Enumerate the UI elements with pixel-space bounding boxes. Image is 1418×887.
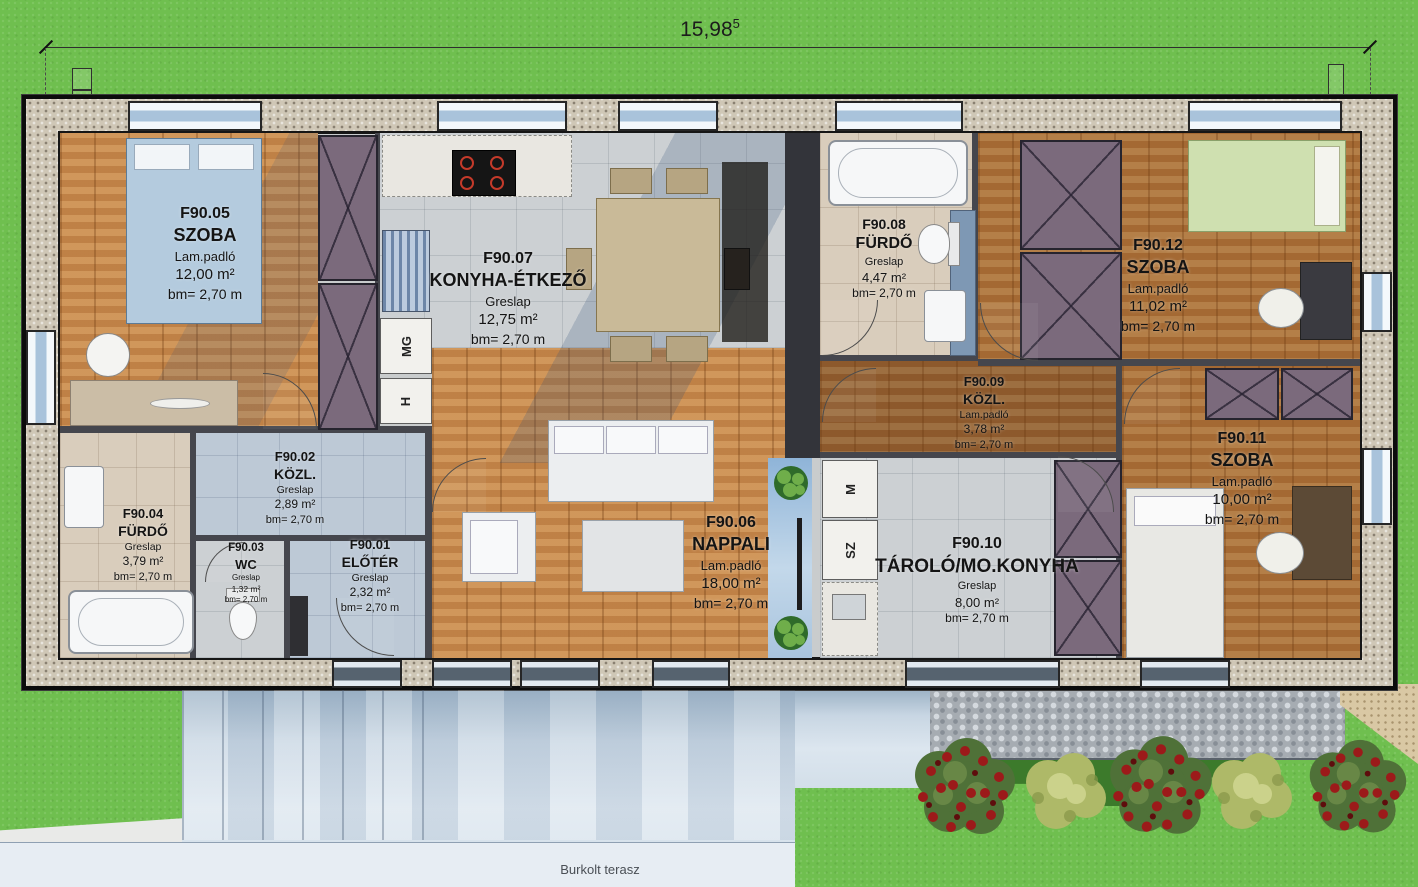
room-area: 3,78 m² <box>955 422 1013 438</box>
pillow <box>198 144 254 170</box>
chair <box>1256 532 1304 574</box>
room-area: 2,89 m² <box>266 497 324 513</box>
room-floor: Greslap <box>430 293 587 310</box>
room-area: 1,32 m² <box>225 584 267 595</box>
room-floor: Greslap <box>266 484 324 498</box>
washing-machine-label: M <box>843 484 858 495</box>
stool <box>86 333 130 377</box>
room-id: F90.06 <box>692 512 770 533</box>
room-id: F90.02 <box>266 448 324 465</box>
desk <box>1300 262 1352 340</box>
window <box>835 101 963 131</box>
room-floor: Lam.padló <box>955 409 1013 423</box>
room-label-f90-05: F90.05 SZOBA Lam.padló 12,00 m² bm= 2,70… <box>168 203 242 303</box>
window <box>905 660 1060 688</box>
wardrobe <box>1281 368 1353 420</box>
vent-marker <box>72 68 92 90</box>
dimension-line <box>45 47 1370 48</box>
dryer: SZ <box>822 520 878 580</box>
rose-bush <box>905 733 1025 847</box>
room-area: 8,00 m² <box>875 594 1079 611</box>
dryer-label: SZ <box>843 542 858 559</box>
burner <box>490 156 504 170</box>
room-id: F90.05 <box>168 203 242 224</box>
pillow <box>134 144 190 170</box>
wall <box>425 426 432 658</box>
chair <box>610 168 652 194</box>
room-height: bm= 2,70 m <box>341 601 399 616</box>
room-name: SZOBA <box>168 224 242 248</box>
sofa-cushion <box>658 426 708 454</box>
green-bush <box>1198 742 1302 838</box>
terrace-door <box>652 660 730 688</box>
bathtub-basin <box>78 598 184 646</box>
room-area: 3,79 m² <box>114 554 172 570</box>
dimension-value: 15,98 <box>680 18 733 41</box>
room-id: F90.04 <box>114 505 172 522</box>
window <box>26 330 56 425</box>
room-floor: Lam.padló <box>1205 473 1279 490</box>
room-floor: Lam.padló <box>168 248 242 265</box>
terrace-steps <box>182 690 432 840</box>
room-name: SZOBA <box>1205 449 1279 473</box>
room-id: F90.07 <box>430 248 587 269</box>
coffee-table <box>582 520 684 592</box>
chair <box>610 336 652 362</box>
chair <box>724 248 750 290</box>
room-floor: Lam.padló <box>1121 280 1195 297</box>
room-id: F90.03 <box>225 541 267 556</box>
dimension-extension-left <box>45 48 46 95</box>
wall-center <box>785 133 820 458</box>
room-name: ELŐTÉR <box>341 553 399 571</box>
room-label-f90-11: F90.11 SZOBA Lam.padló 10,00 m² bm= 2,70… <box>1205 428 1279 528</box>
chair <box>666 336 708 362</box>
room-label-f90-04: F90.04 FÜRDŐ Greslap 3,79 m² bm= 2,70 m <box>114 505 172 585</box>
fridge: H <box>380 378 432 424</box>
room-area: 4,47 m² <box>852 269 916 286</box>
room-area: 18,00 m² <box>692 574 770 594</box>
room-height: bm= 2,70 m <box>1121 317 1195 335</box>
room-name: KONYHA-ÉTKEZŐ <box>430 269 587 293</box>
sink <box>924 290 966 342</box>
window <box>1188 101 1342 131</box>
room-floor: Greslap <box>341 572 399 586</box>
utility-sink <box>832 594 866 620</box>
chair <box>666 168 708 194</box>
pillow <box>1134 496 1216 526</box>
room-area: 2,32 m² <box>341 585 399 601</box>
room-area: 12,75 m² <box>430 310 587 330</box>
window <box>432 660 512 688</box>
room-floor: Greslap <box>852 255 916 270</box>
room-id: F90.11 <box>1205 428 1279 449</box>
room-id: F90.12 <box>1121 235 1195 256</box>
room-floor: Greslap <box>875 579 1079 594</box>
washing-machine: M <box>822 460 878 518</box>
room-label-f90-08: F90.08 FÜRDŐ Greslap 4,47 m² bm= 2,70 m <box>852 215 916 302</box>
window <box>618 101 718 131</box>
room-label-f90-06: F90.06 NAPPALI Lam.padló 18,00 m² bm= 2,… <box>692 512 770 612</box>
window <box>437 101 567 131</box>
burner <box>490 176 504 190</box>
room-height: bm= 2,70 m <box>875 611 1079 627</box>
floor-plan-canvas: 15,985 Burkolt terasz <box>0 0 1418 887</box>
room-label-f90-03: F90.03 WC Greslap 1,32 m² bm= 2,70 m <box>225 541 267 606</box>
room-floor: Lam.padló <box>692 557 770 574</box>
room-height: bm= 2,70 m <box>852 286 916 302</box>
room-height: bm= 2,70 m <box>955 438 1013 453</box>
room-height: bm= 2,70 m <box>168 285 242 303</box>
room-height: bm= 2,70 m <box>430 330 587 348</box>
room-id: F90.01 <box>341 536 399 553</box>
room-id: F90.08 <box>852 215 916 233</box>
window <box>128 101 262 131</box>
room-label-f90-12: F90.12 SZOBA Lam.padló 11,02 m² bm= 2,70… <box>1121 235 1195 335</box>
room-height: bm= 2,70 m <box>266 513 324 528</box>
room-id: F90.09 <box>955 373 1013 390</box>
entry-door <box>332 660 402 688</box>
window <box>1362 448 1392 525</box>
wardrobe <box>1020 140 1122 250</box>
toilet-bowl <box>918 224 950 264</box>
vent-marker <box>1328 64 1344 96</box>
dimension-superscript: 5 <box>733 16 740 31</box>
burner <box>460 156 474 170</box>
room-area: 10,00 m² <box>1205 490 1279 510</box>
dining-table <box>596 198 720 332</box>
dimension-label: 15,985 <box>630 16 790 42</box>
chair <box>1258 288 1304 328</box>
room-name: WC <box>225 556 267 573</box>
sofa-cushion <box>554 426 604 454</box>
dishwasher-cabinet: MG <box>380 318 432 374</box>
tv-panel <box>797 518 802 610</box>
room-height: bm= 2,70 m <box>692 594 770 612</box>
potted-plant <box>770 462 812 504</box>
room-area: 12,00 m² <box>168 265 242 285</box>
wardrobe <box>318 135 378 281</box>
rose-bush <box>1300 735 1416 845</box>
wardrobe <box>318 283 378 430</box>
wardrobe <box>1205 368 1279 420</box>
dresser-handle <box>150 398 210 409</box>
room-label-f90-09: F90.09 KÖZL. Lam.padló 3,78 m² bm= 2,70 … <box>955 373 1013 453</box>
room-name: FÜRDŐ <box>114 522 172 540</box>
room-floor: Greslap <box>225 573 267 584</box>
window <box>1140 660 1230 688</box>
terrace-label: Burkolt terasz <box>510 862 690 877</box>
sink <box>64 466 104 528</box>
window <box>1362 272 1392 332</box>
room-floor: Greslap <box>114 541 172 555</box>
room-id: F90.10 <box>875 533 1079 554</box>
room-area: 11,02 m² <box>1121 297 1195 317</box>
room-label-f90-10: F90.10 TÁROLÓ/MO.KONYHA Greslap 8,00 m² … <box>875 533 1079 627</box>
armchair-seat <box>470 520 518 574</box>
room-name: FÜRDŐ <box>852 233 916 254</box>
wall <box>820 452 1122 458</box>
sofa-cushion <box>606 426 656 454</box>
room-name: TÁROLÓ/MO.KONYHA <box>875 554 1079 579</box>
terrace-door <box>520 660 600 688</box>
bathtub-basin <box>838 148 958 198</box>
room-height: bm= 2,70 m <box>114 570 172 585</box>
room-name: NAPPALI <box>692 533 770 557</box>
fridge-label: H <box>398 396 413 405</box>
shoe-cabinet <box>290 596 308 656</box>
dishwasher <box>382 230 430 312</box>
room-label-f90-07: F90.07 KONYHA-ÉTKEZŐ Greslap 12,75 m² bm… <box>430 248 587 348</box>
pillow <box>1314 146 1340 226</box>
room-height: bm= 2,70 m <box>1205 510 1279 528</box>
room-name: KÖZL. <box>266 465 324 483</box>
desk <box>1292 486 1352 580</box>
dishwasher-label: MG <box>398 336 413 357</box>
burner <box>460 176 474 190</box>
room-name: SZOBA <box>1121 256 1195 280</box>
room-name: KÖZL. <box>955 390 1013 408</box>
room-label-f90-01: F90.01 ELŐTÉR Greslap 2,32 m² bm= 2,70 m <box>341 536 399 616</box>
room-height: bm= 2,70 m <box>225 595 267 606</box>
potted-plant <box>770 612 812 654</box>
dimension-extension-right <box>1370 48 1371 95</box>
room-label-f90-02: F90.02 KÖZL. Greslap 2,89 m² bm= 2,70 m <box>266 448 324 528</box>
